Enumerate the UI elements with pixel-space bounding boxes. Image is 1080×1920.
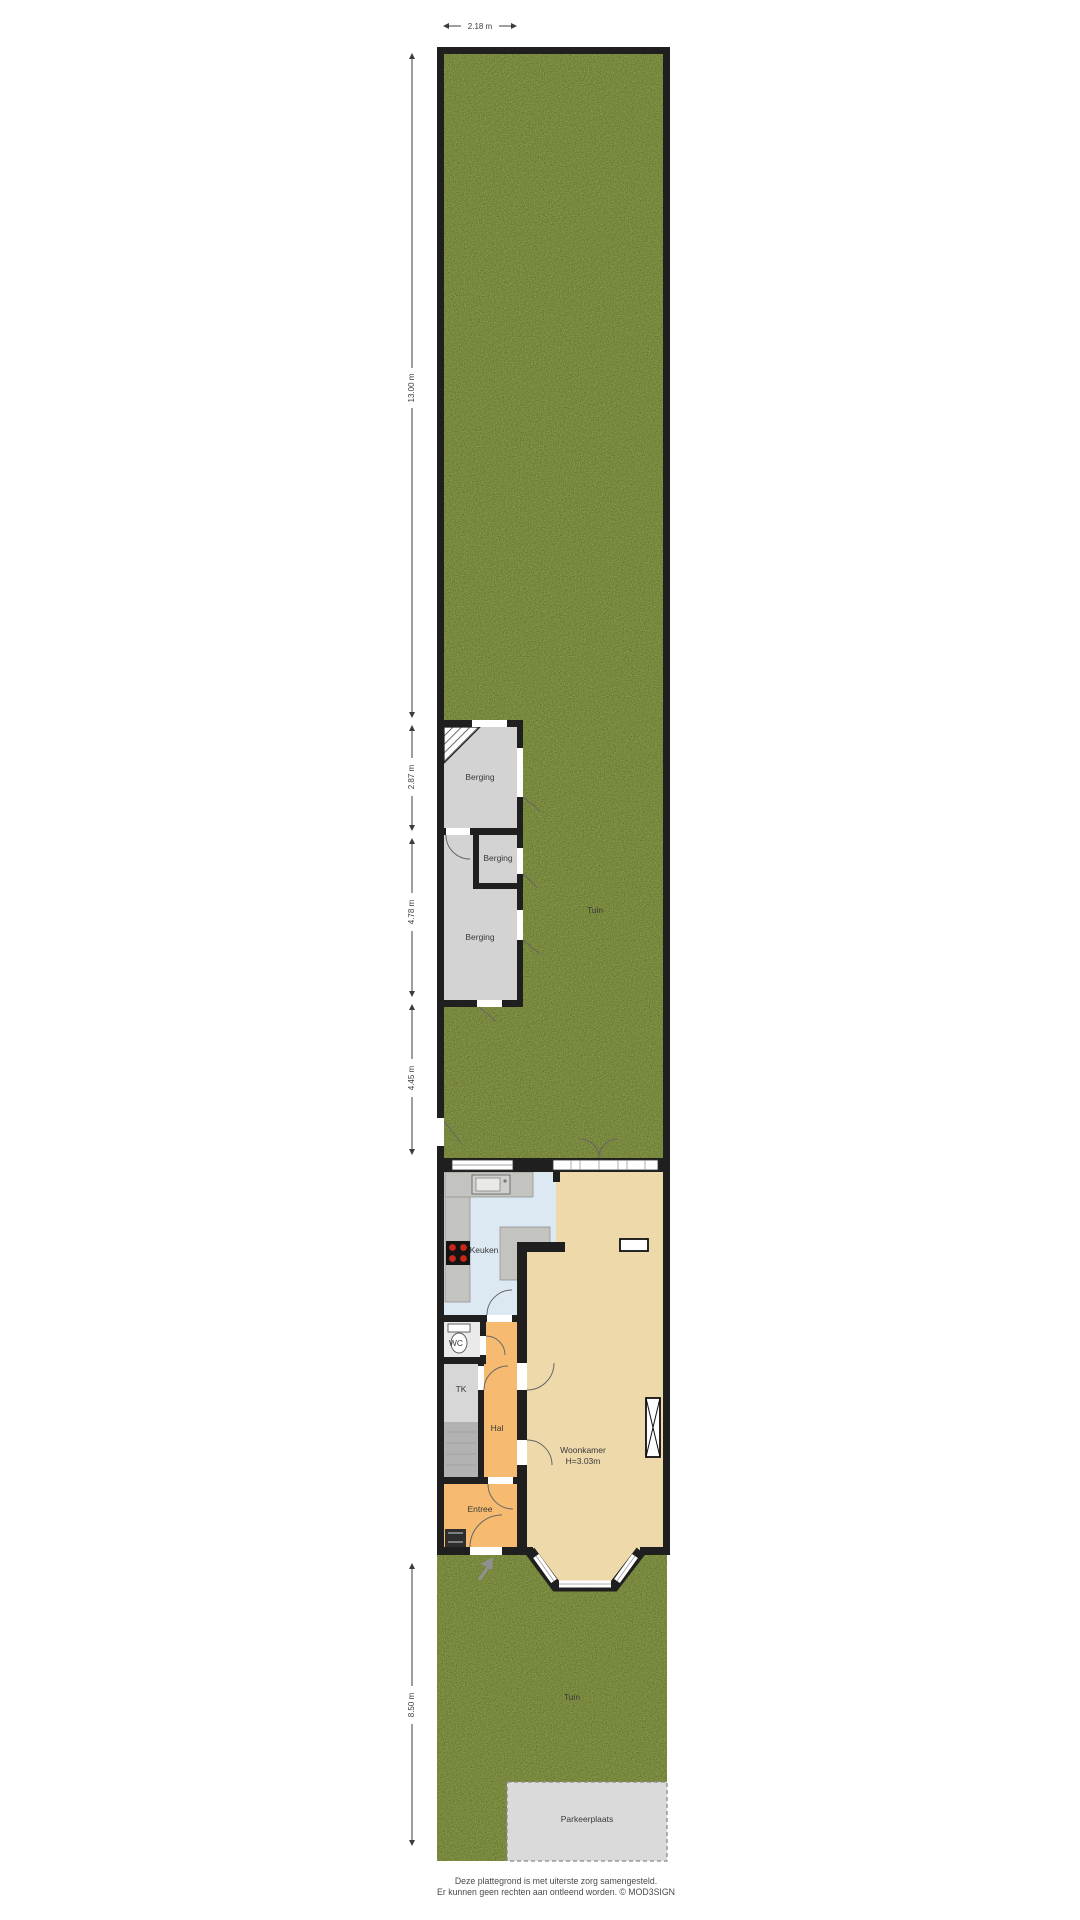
dim-label-berging-bottom: 4.78 m bbox=[407, 899, 416, 924]
wall-top bbox=[437, 47, 670, 54]
dimension-left-chain: 13.00 m 2.87 m 4.78 m 4.45 m 8.50 m bbox=[405, 53, 419, 1846]
door-hal-entree bbox=[488, 1477, 513, 1484]
hal-floor bbox=[484, 1322, 517, 1481]
door-hal-woonkamer-2 bbox=[517, 1440, 527, 1465]
wall-left bbox=[437, 47, 444, 1555]
entree-label: Entree bbox=[467, 1504, 492, 1514]
berging-middle-label: Berging bbox=[483, 853, 513, 863]
berging-door-right-1 bbox=[517, 748, 523, 797]
berging-bottom-label: Berging bbox=[465, 932, 495, 942]
berging-door-top bbox=[472, 720, 507, 727]
wall-hal-woonkamer bbox=[517, 1242, 527, 1547]
door-wc bbox=[480, 1336, 486, 1355]
door-hal-woonkamer-1 bbox=[517, 1363, 527, 1390]
door-tk bbox=[478, 1366, 484, 1390]
footer-disclaimer: Deze plattegrond is met uiterste zorg sa… bbox=[437, 1876, 675, 1899]
front-door bbox=[470, 1547, 502, 1555]
front-garden-label: Tuin bbox=[564, 1692, 580, 1702]
keuken-label: Keuken bbox=[470, 1245, 499, 1255]
tk-floor-bottom bbox=[444, 1422, 478, 1477]
woonkamer-label: Woonkamer bbox=[560, 1445, 606, 1455]
footer-line-1: Deze plattegrond is met uiterste zorg sa… bbox=[437, 1876, 675, 1887]
floorplan-canvas: 2.18 m 13.00 m 2.87 m 4.78 m 4.45 m bbox=[0, 0, 1080, 1920]
wc-label: WC bbox=[449, 1338, 463, 1348]
house: Keuken WC TK Hal Woonkamer H=3.03m Entre… bbox=[437, 1139, 670, 1587]
dim-label-front-garden: 8.50 m bbox=[407, 1692, 416, 1717]
hal-label: Hal bbox=[491, 1423, 504, 1433]
tk-label: TK bbox=[456, 1384, 467, 1394]
radiator-icon-top bbox=[620, 1239, 648, 1251]
berging-door-right-2 bbox=[517, 848, 523, 874]
berging-divider-2 bbox=[473, 883, 523, 889]
wall-wc-bottom bbox=[444, 1357, 486, 1364]
berging-door-right-3 bbox=[517, 910, 523, 940]
wall-stub-woonkamer bbox=[517, 1242, 565, 1252]
berging-middle-wall-left bbox=[473, 835, 479, 889]
garden-gate-opening bbox=[437, 1118, 444, 1146]
meter-closet-icon bbox=[445, 1529, 466, 1547]
radiator-icon-right bbox=[646, 1398, 660, 1457]
door-keuken-hal bbox=[487, 1315, 512, 1322]
berging-door-bottom bbox=[477, 1000, 502, 1007]
floorplan-page: 2.18 m 13.00 m 2.87 m 4.78 m 4.45 m bbox=[0, 0, 1080, 1920]
woonkamer-height-label: H=3.03m bbox=[566, 1456, 601, 1466]
wall-right bbox=[663, 47, 670, 1555]
dimension-top-width: 2.18 m bbox=[443, 22, 517, 31]
footer-line-2: Er kunnen geen rechten aan ontleend word… bbox=[437, 1887, 675, 1898]
dim-label-top: 2.18 m bbox=[468, 22, 493, 31]
stove-icon bbox=[446, 1241, 470, 1265]
dim-label-mid-garden: 4.45 m bbox=[407, 1065, 416, 1090]
berging-door-inner bbox=[446, 828, 470, 835]
parking-label: Parkeerplaats bbox=[561, 1814, 613, 1824]
front-garden: Tuin Parkeerplaats bbox=[437, 1555, 667, 1861]
back-garden-label: Tuin bbox=[587, 905, 603, 915]
dim-label-back-garden: 13.00 m bbox=[407, 373, 416, 402]
dim-label-berging-top: 2.87 m bbox=[407, 764, 416, 789]
parking-space: Parkeerplaats bbox=[507, 1782, 667, 1861]
berging-top-label: Berging bbox=[465, 772, 495, 782]
garden-doors-window bbox=[553, 1160, 658, 1170]
